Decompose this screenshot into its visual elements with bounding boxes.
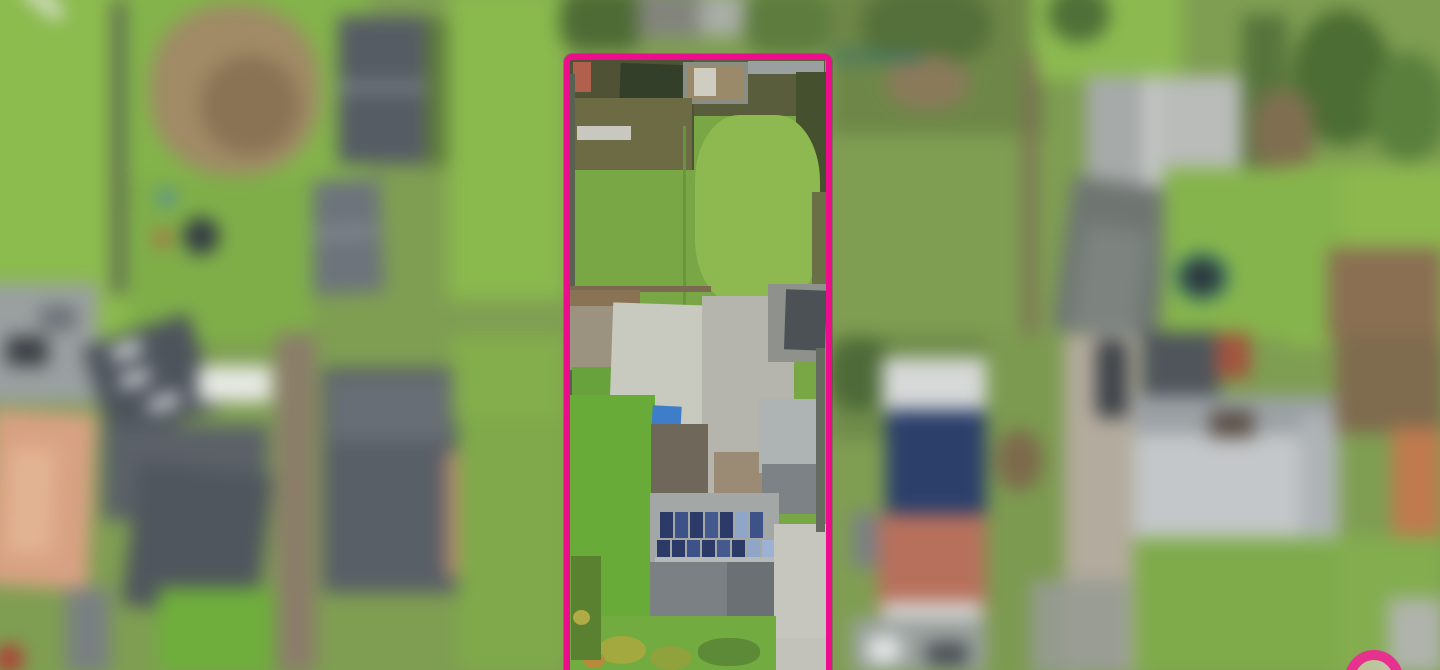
outbuilding-right-slope bbox=[1086, 76, 1148, 194]
property-boundary-outline bbox=[564, 54, 832, 670]
car-dark-1 bbox=[6, 336, 48, 366]
shed-above-plot bbox=[638, 0, 702, 38]
car-gray-2 bbox=[40, 306, 76, 330]
trees-above-plot-right bbox=[744, 0, 832, 54]
white-car-bottom-right bbox=[868, 636, 900, 663]
conifer-top-right-2 bbox=[1368, 52, 1440, 162]
white-flat-roof bbox=[198, 366, 272, 402]
lawn-right-mid bbox=[1164, 168, 1344, 338]
big-house-right-slope-right bbox=[1300, 415, 1339, 535]
dead-tree-core bbox=[200, 55, 300, 155]
salmon-roof-light bbox=[5, 447, 56, 554]
lawn-big-house bbox=[1134, 538, 1339, 670]
orange-shed-bottom-right bbox=[1392, 428, 1440, 536]
veg-patch-bottom-right bbox=[1336, 335, 1440, 433]
brown-driveway-vertical bbox=[276, 333, 316, 670]
dark-house-center-left-hip bbox=[330, 378, 450, 440]
greenhouse-above-plot bbox=[700, 0, 746, 36]
trampoline-mat bbox=[1181, 258, 1223, 296]
garden-mid-left bbox=[128, 178, 313, 343]
red-bin bbox=[156, 231, 169, 246]
trees-above-plot-left bbox=[560, 0, 645, 50]
brown-patch-top-right bbox=[885, 55, 970, 110]
aerial-property-photo bbox=[0, 0, 1440, 670]
solar-house-red-roof bbox=[878, 514, 1000, 614]
fence-left-vertical bbox=[112, 0, 125, 295]
lawn-bottom-left bbox=[158, 588, 283, 670]
outbuilding-ridge bbox=[1146, 76, 1153, 194]
car-on-road bbox=[1096, 340, 1128, 418]
red-bits-road-top bbox=[1216, 333, 1250, 378]
gray-outbuilding-bl bbox=[66, 588, 110, 670]
brown-top-right-corner bbox=[1252, 90, 1314, 175]
solar-house-panels bbox=[886, 410, 988, 516]
blue-bin bbox=[160, 190, 173, 205]
hedge-beside-roof bbox=[426, 18, 448, 166]
big-house-chimney bbox=[1210, 410, 1254, 438]
veg-patch-top-right bbox=[1328, 248, 1440, 340]
slate-roof-ridge bbox=[338, 82, 426, 92]
dark-car-bottom-right bbox=[926, 642, 968, 666]
solar-house-ridge bbox=[882, 358, 986, 412]
fence-between-gardens-right bbox=[1024, 55, 1036, 340]
teal-fence-top-right bbox=[830, 52, 922, 61]
dark-pool bbox=[183, 217, 219, 255]
lawn-below-center-house bbox=[458, 420, 566, 670]
red-car bbox=[0, 646, 22, 670]
dark-building-road-top bbox=[1142, 332, 1220, 400]
patio-items-bottom-right bbox=[1030, 580, 1130, 670]
solar-house-white-band bbox=[882, 602, 982, 618]
lawn-center-left bbox=[448, 0, 566, 300]
green-strip-center-house bbox=[452, 335, 566, 420]
brown-spot-strip bbox=[996, 430, 1042, 490]
